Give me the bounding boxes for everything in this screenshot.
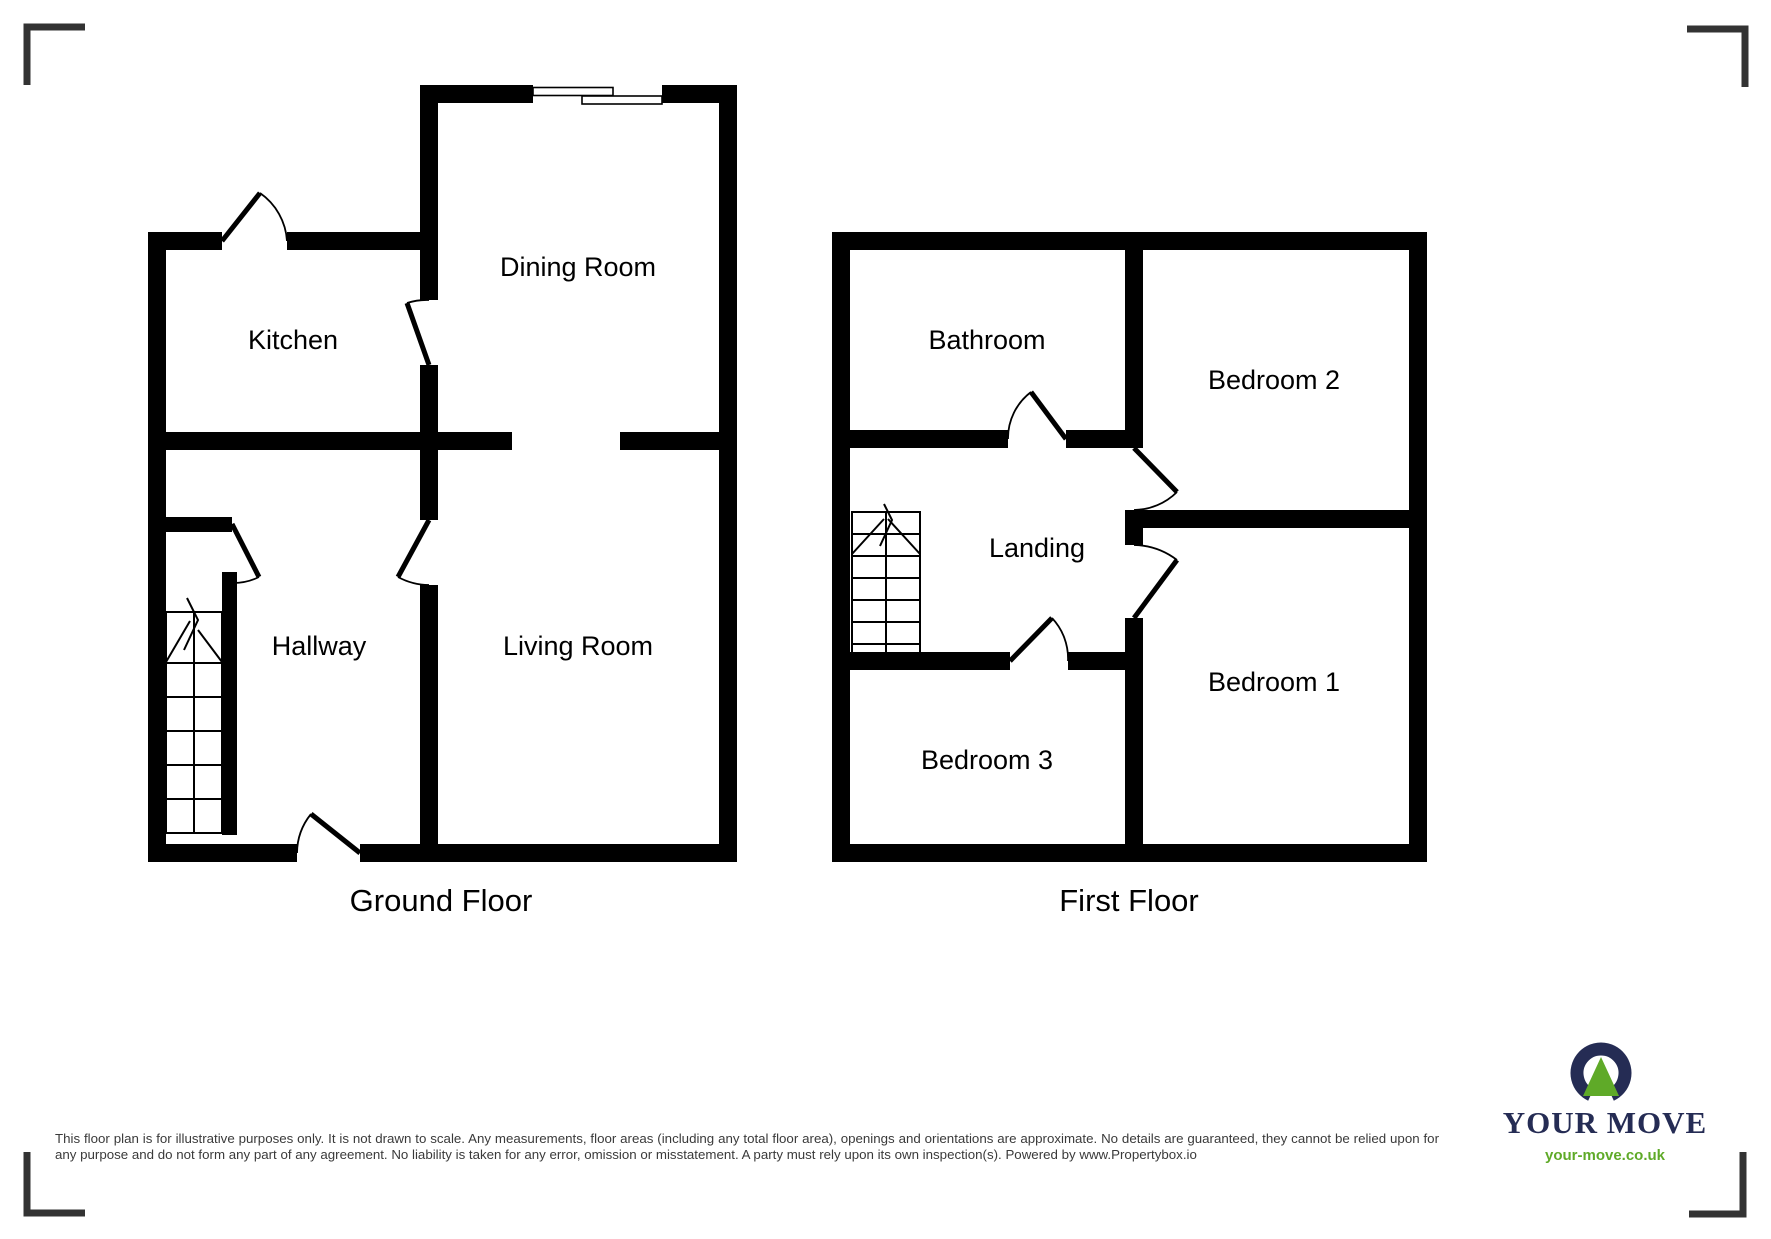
wall — [360, 844, 737, 862]
room-label-bedroom-2: Bedroom 2 — [1208, 365, 1340, 395]
wall — [1068, 652, 1125, 670]
window-icon — [533, 88, 662, 105]
wall — [420, 585, 438, 844]
room-label-hallway: Hallway — [272, 631, 367, 661]
corner-mark-top-left-icon — [27, 27, 85, 85]
door-entry — [297, 814, 360, 853]
wall — [1409, 232, 1427, 862]
logo-brand-text: YOUR MOVE — [1503, 1105, 1707, 1140]
wall — [148, 844, 297, 862]
floor-title-first: First Floor — [1059, 883, 1199, 918]
wall — [719, 85, 737, 862]
wall — [1125, 510, 1427, 528]
door-back — [222, 193, 287, 241]
door-bathroom — [1008, 392, 1066, 439]
wall — [1125, 528, 1143, 545]
wall — [148, 517, 232, 532]
wall — [222, 572, 237, 835]
door-bedroom-3 — [1010, 618, 1068, 661]
wall — [148, 432, 512, 450]
floorplan-canvas: Kitchen Dining Room Hallway Living Room … — [0, 0, 1771, 1239]
wall — [850, 430, 1008, 448]
room-label-bedroom-1: Bedroom 1 — [1208, 667, 1340, 697]
wall — [1125, 618, 1143, 862]
wall — [420, 450, 438, 520]
ground-floor-plan: Kitchen Dining Room Hallway Living Room … — [148, 85, 737, 918]
wall — [832, 232, 850, 862]
room-label-dining-room: Dining Room — [500, 252, 656, 282]
disclaimer-text: This floor plan is for illustrative purp… — [55, 1131, 1439, 1163]
door-bedroom-2 — [1134, 448, 1177, 510]
wall — [148, 232, 166, 862]
logo-triangle-icon — [1583, 1057, 1619, 1096]
room-label-bathroom: Bathroom — [928, 325, 1045, 355]
wall — [832, 232, 1427, 250]
door-living-room — [398, 520, 429, 585]
wall — [287, 232, 430, 250]
room-label-living-room: Living Room — [503, 631, 653, 661]
wall — [620, 432, 737, 450]
stairs-ground-icon — [166, 598, 222, 833]
stairs-first-icon — [852, 504, 920, 668]
door-kitchen-dining — [407, 300, 429, 365]
corner-mark-bottom-right-icon — [1689, 1152, 1743, 1214]
wall — [1066, 430, 1143, 448]
first-floor-plan: Bathroom Bedroom 2 Landing Bedroom 1 Bed… — [832, 232, 1427, 918]
room-label-bedroom-3: Bedroom 3 — [921, 745, 1053, 775]
corner-mark-top-right-icon — [1687, 29, 1745, 87]
wall — [1125, 250, 1143, 430]
wall — [420, 85, 438, 300]
room-label-landing: Landing — [989, 533, 1085, 563]
floor-title-ground: Ground Floor — [350, 883, 533, 918]
your-move-logo: YOUR MOVE your-move.co.uk — [1503, 1049, 1707, 1164]
logo-website-text: your-move.co.uk — [1545, 1147, 1666, 1164]
door-bedroom-1 — [1134, 545, 1177, 618]
room-label-kitchen: Kitchen — [248, 325, 338, 355]
